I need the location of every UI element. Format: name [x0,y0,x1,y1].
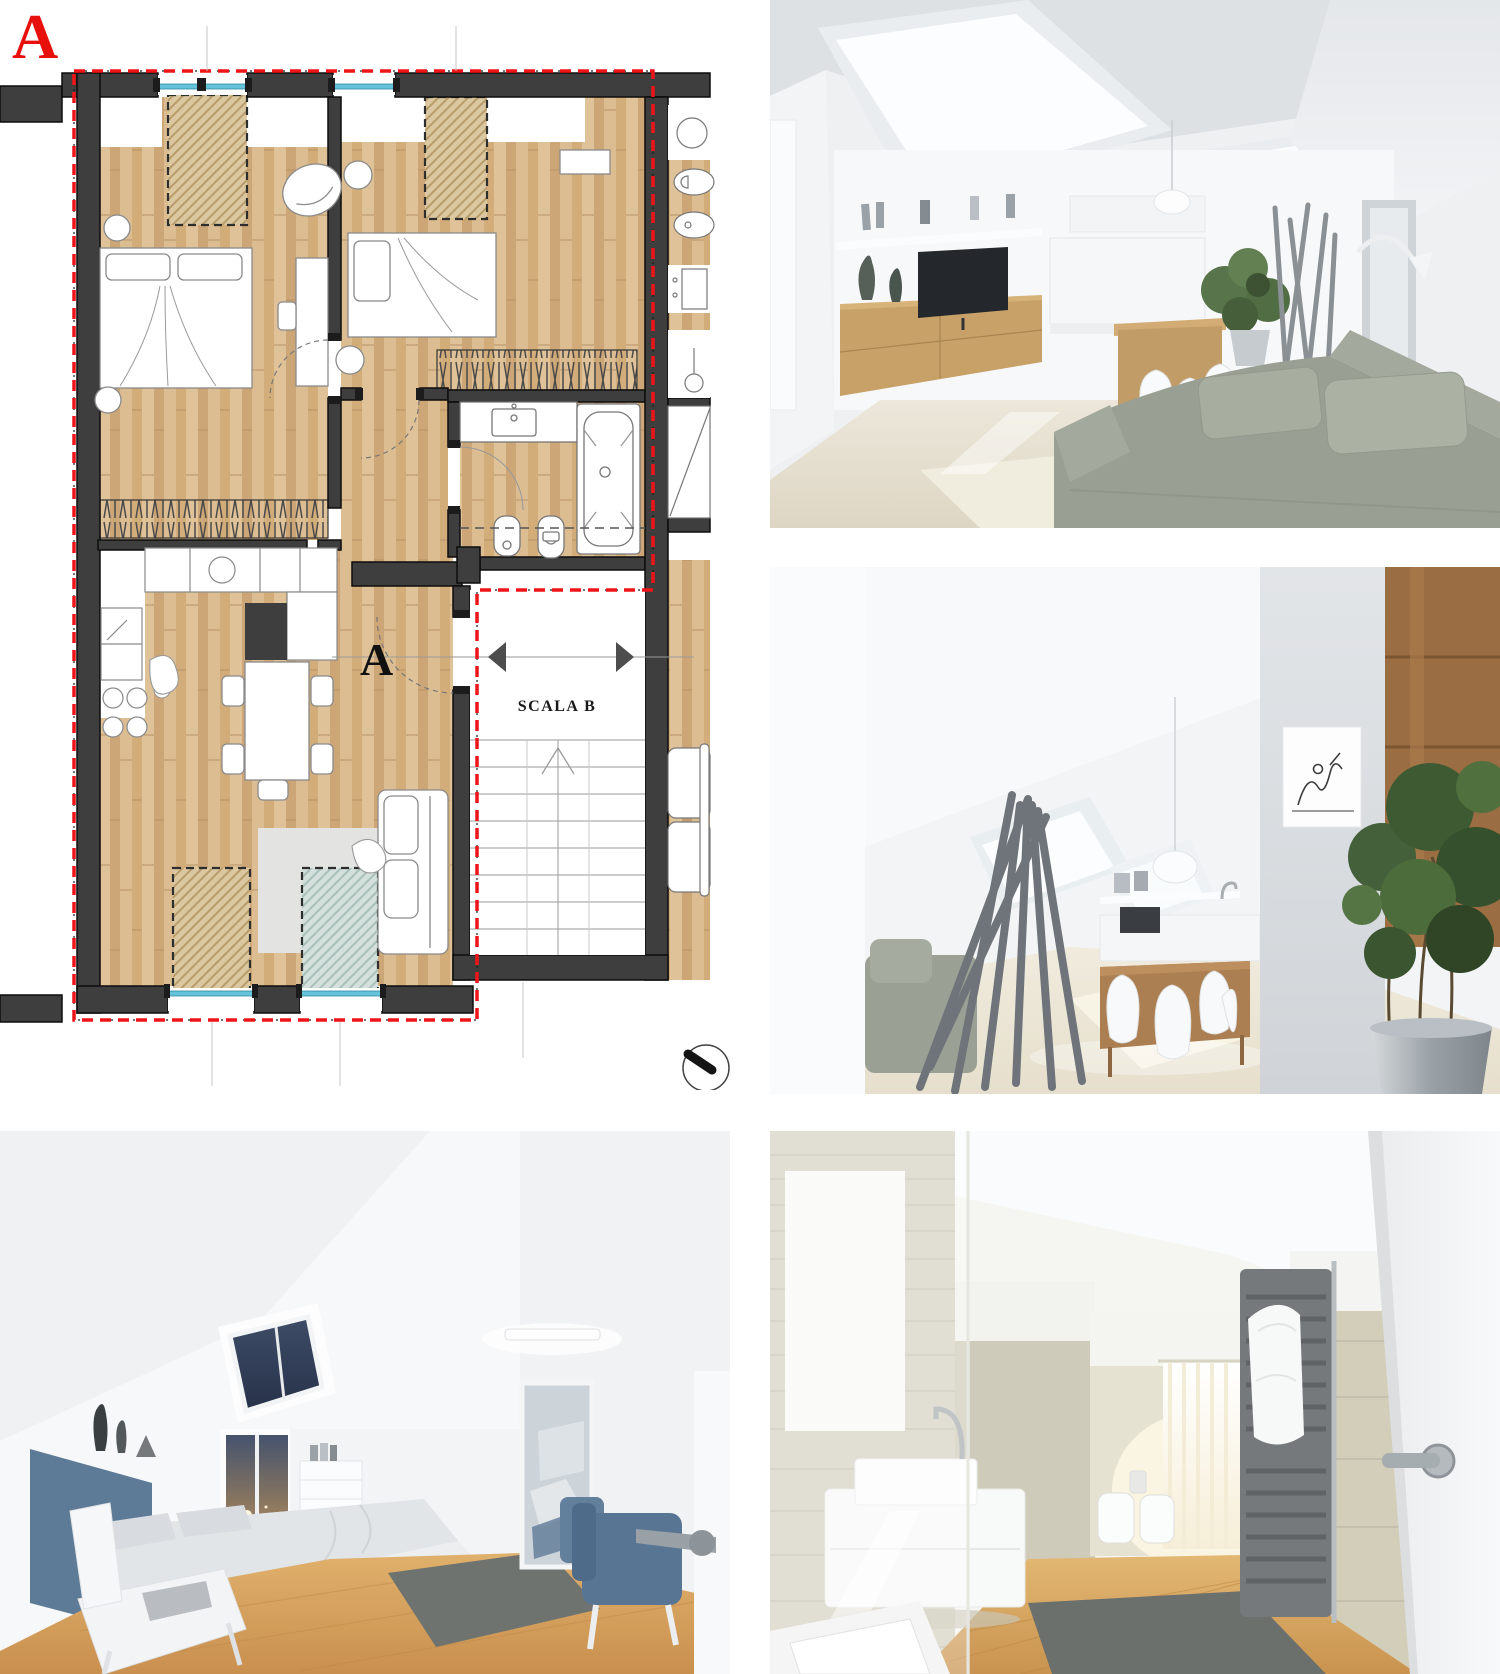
bidet [674,212,714,238]
towel-radiator [1240,1261,1334,1623]
sofa-cushion [870,939,932,983]
line-art-picture [1283,727,1361,827]
nightstand [344,161,372,189]
nightstand [95,387,121,413]
tv [1120,907,1160,933]
tv [918,247,1008,318]
hob-burner [103,688,123,708]
nightstand [104,215,130,241]
left-wall [770,567,865,1094]
bath-sink [492,409,536,436]
wall-light [482,1323,622,1355]
north-arrow-icon [683,1045,729,1090]
pendant-lamp [1154,190,1190,214]
desk-chair [278,302,296,330]
bathtub [577,404,640,554]
desk [296,258,328,386]
render-bedroom [0,1131,730,1674]
shelf [560,150,610,174]
render-living-kitchen [770,0,1500,528]
kitchen-block [245,603,287,660]
floor-plan: SCALA B A [0,0,760,1090]
plan-label: A [12,1,58,72]
window [770,120,796,410]
neighbour-bathroom [668,105,714,896]
kitchen-counter [145,548,337,592]
nightstand [336,346,364,374]
panton-chair [1155,985,1191,1059]
presentation-board: SCALA B A [0,0,1500,1674]
toilet [674,169,714,195]
bidet [494,516,520,556]
panton-chair [1107,975,1139,1043]
stairwell-label: SCALA B [518,698,597,715]
render-dining-branches [770,567,1500,1094]
shower-glass [770,1131,970,1674]
kitchen-sink-round [209,557,235,583]
shower [668,406,710,518]
render-bathroom [770,1131,1500,1674]
dining-table [245,662,309,780]
section-marker-label: A [360,634,393,685]
pendant-lamp [1153,851,1197,883]
